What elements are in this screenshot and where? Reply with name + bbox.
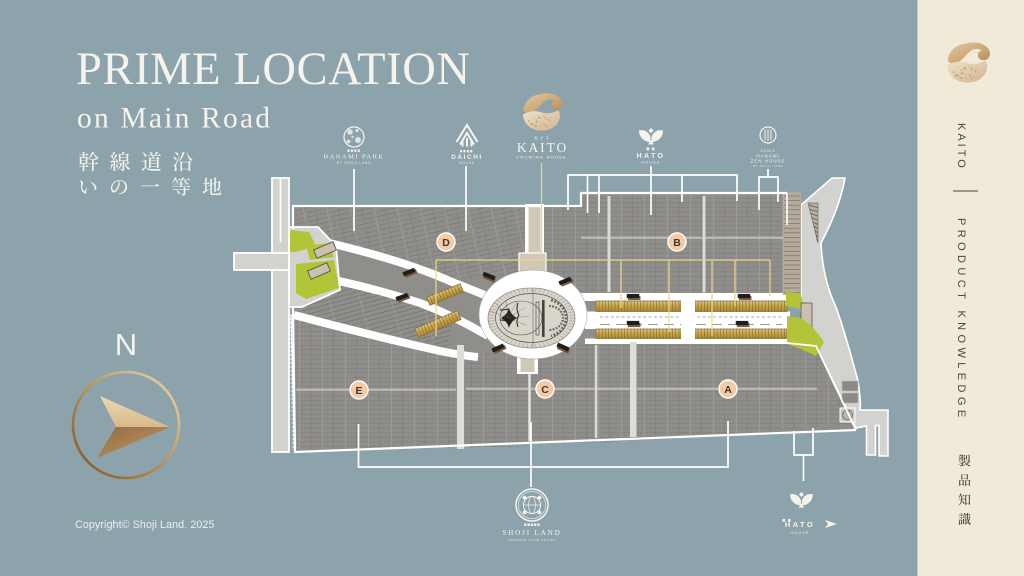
svg-text:BY SHOJI LAND: BY SHOJI LAND bbox=[753, 164, 783, 168]
svg-text:ZEN HOUSE: ZEN HOUSE bbox=[751, 159, 786, 164]
svg-text:SHOJI LAND: SHOJI LAND bbox=[502, 529, 561, 537]
svg-text:DAICHI: DAICHI bbox=[451, 154, 483, 161]
svg-text:HOUSE: HOUSE bbox=[459, 161, 475, 165]
svg-text:A: A bbox=[724, 384, 732, 396]
svg-text:D: D bbox=[442, 237, 450, 249]
svg-text:BY SHOJI LAND: BY SHOJI LAND bbox=[337, 161, 371, 165]
svg-text:N: N bbox=[115, 327, 137, 362]
svg-text:KAITO: KAITO bbox=[517, 140, 568, 155]
svg-text:HATO: HATO bbox=[785, 520, 815, 529]
svg-text:CHALE: CHALE bbox=[760, 149, 775, 153]
svg-text:on Main Road: on Main Road bbox=[77, 103, 272, 135]
svg-text:HANAMI PARK: HANAMI PARK bbox=[323, 154, 384, 161]
svg-text:PRODUCT KNOWLEDGE: PRODUCT KNOWLEDGE bbox=[955, 218, 967, 422]
svg-text:C: C bbox=[541, 384, 549, 396]
svg-text:KAITO: KAITO bbox=[955, 123, 967, 171]
svg-text:B: B bbox=[673, 237, 681, 249]
svg-text:HATO: HATO bbox=[637, 153, 666, 160]
svg-text:PRIME LOCATION: PRIME LOCATION bbox=[76, 44, 471, 95]
svg-text:HOUSE: HOUSE bbox=[641, 161, 661, 165]
svg-text:Copyright© Shoji Land. 2025: Copyright© Shoji Land. 2025 bbox=[75, 519, 215, 531]
svg-text:CROWING HOUSE: CROWING HOUSE bbox=[516, 155, 567, 160]
svg-text:CROWING HOME SERIES: CROWING HOME SERIES bbox=[508, 538, 556, 542]
svg-text:HOUSE: HOUSE bbox=[790, 531, 809, 535]
svg-text:E: E bbox=[355, 385, 362, 397]
